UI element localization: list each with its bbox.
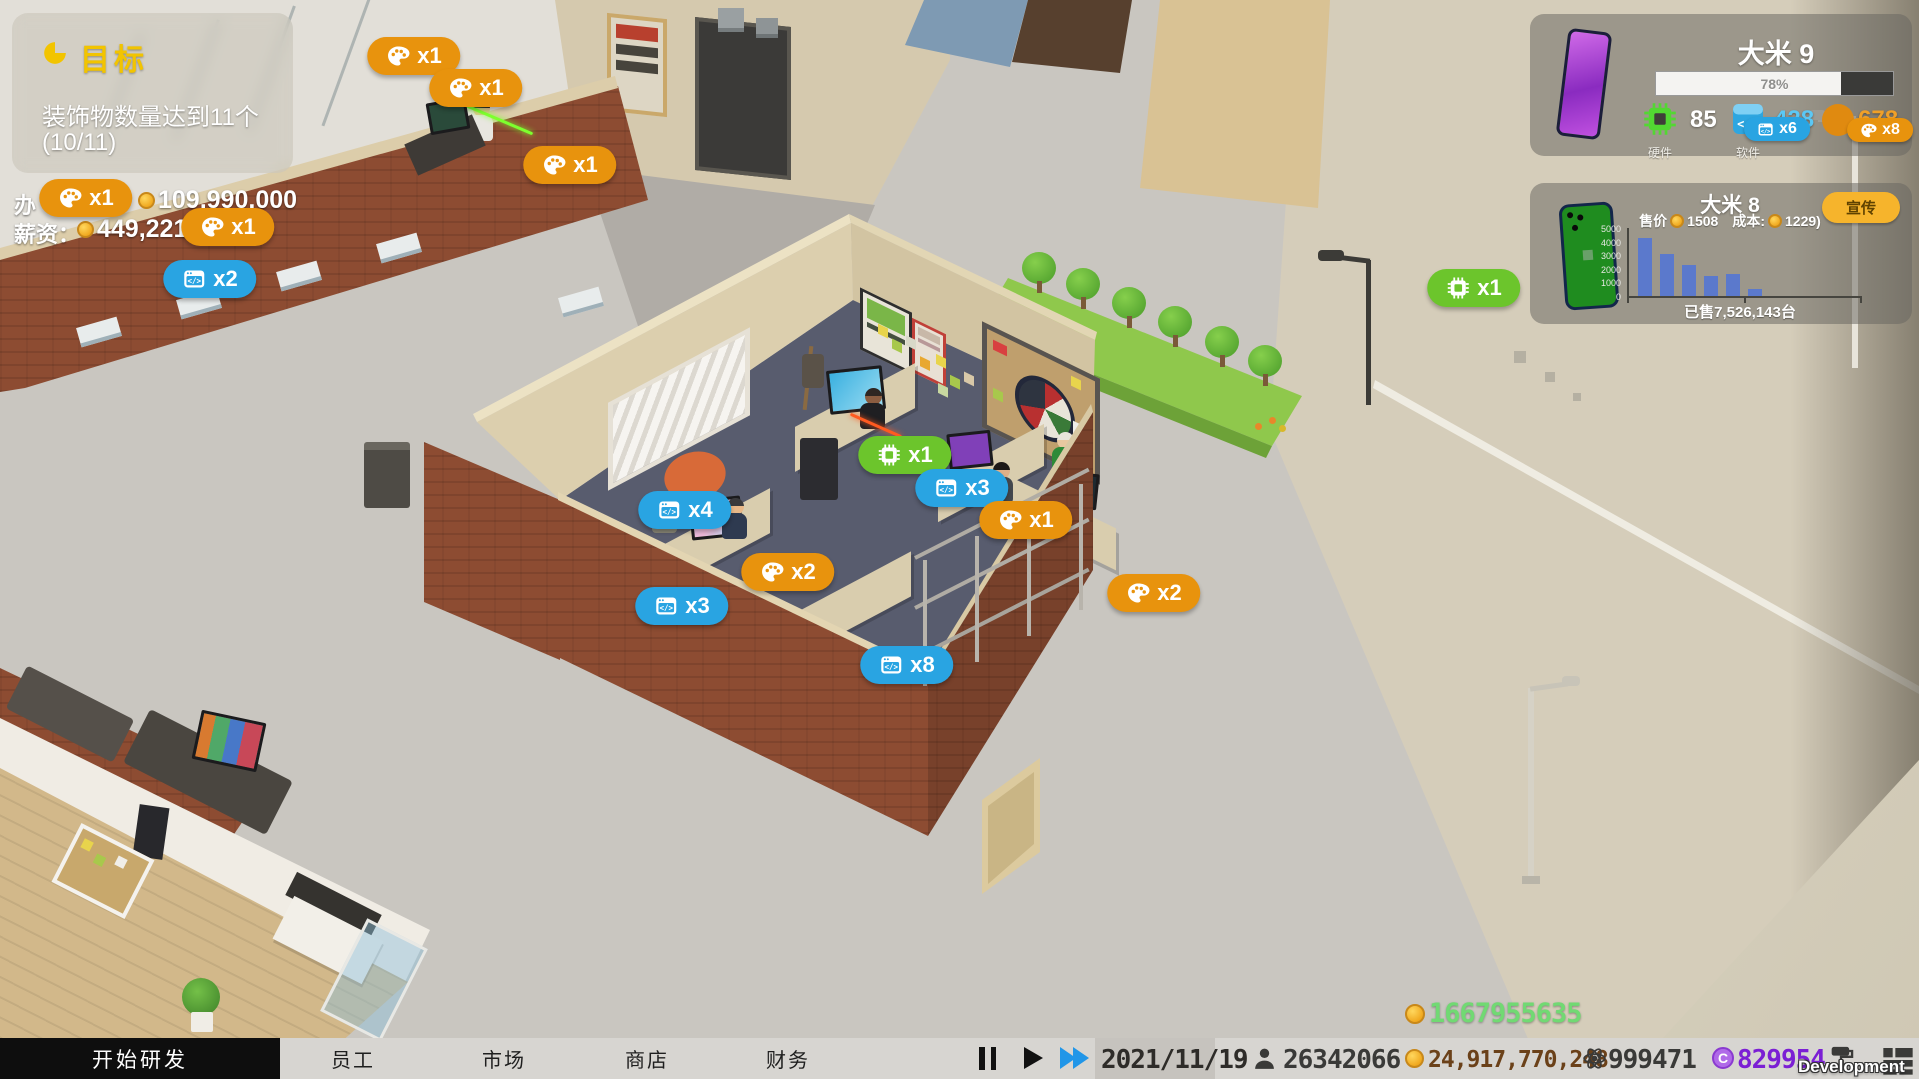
badge-count: x2 [213, 266, 237, 292]
roof-ac-unit [718, 8, 744, 32]
bottom-bar: 开始研发 员工市场商店财务 2021/11/19 26342066 24,917… [0, 1038, 1919, 1079]
resource-badge-palette[interactable]: x1 [181, 208, 274, 246]
badge-count: x6 [1779, 120, 1797, 138]
coin-icon [138, 192, 155, 209]
resource-badge-chip[interactable]: x1 [1427, 269, 1520, 307]
chip-icon [877, 443, 901, 467]
coin-icon [77, 221, 94, 238]
palette-icon [448, 76, 472, 100]
phone-sales-panel[interactable]: 大米 8 售价 1508 成本: 1229) 宣传 01000200030004… [1530, 183, 1912, 324]
coin-icon [1405, 1004, 1425, 1024]
coat-rack [792, 346, 826, 412]
badge-count: x2 [791, 559, 815, 585]
salary-value: 449,221 [97, 215, 187, 244]
units-sold: 已售7,526,143台 [1620, 301, 1860, 322]
plant [182, 978, 222, 1040]
sales-chart: 010002000300040005000 [1530, 225, 1912, 309]
stat-hardware-label: 硬件 [1648, 144, 1672, 161]
goal-progress: (10/11) [42, 129, 116, 157]
resource-badge-code[interactable]: </>x3 [635, 587, 728, 625]
badge-count: x1 [417, 43, 441, 69]
desk-tv [946, 430, 994, 470]
badge-count: x1 [1477, 275, 1501, 301]
stat-hardware: 硬件 [1642, 101, 1678, 161]
money-gain-value: 1667955635 [1429, 998, 1582, 1029]
resource-badge-palette[interactable]: x1 [39, 179, 132, 217]
road-block [1573, 393, 1581, 401]
tab-start-research[interactable]: 开始研发 [0, 1038, 280, 1079]
palette-icon [1860, 122, 1877, 139]
phone-dev-panel[interactable]: 大米 9 78% 硬件 85 </> 软件 428 678 </>x6x8 [1530, 14, 1912, 156]
game-screen: x1x1x1x1x1</>x2x1x1</>x3x1</>x4x2</>x3x2… [0, 0, 1919, 1079]
science-value: 999471 [1608, 1045, 1696, 1075]
chart-y-tick-label: 1000 [1591, 278, 1621, 288]
stat-software-label: 软件 [1736, 144, 1760, 161]
badge-count: x1 [89, 185, 113, 211]
population-value: 26342066 [1283, 1045, 1400, 1075]
code-icon: </> [934, 476, 958, 500]
tree [1205, 326, 1239, 367]
coin-icon [1405, 1049, 1424, 1068]
resource-badge-palette[interactable]: x2 [741, 553, 834, 591]
svg-text:</>: </> [187, 277, 201, 286]
dev-phone-name: 大米 9 [1640, 32, 1912, 71]
chip-icon [1446, 276, 1470, 300]
promote-button[interactable]: 宣传 [1822, 192, 1900, 223]
resource-badge-palette[interactable]: x1 [429, 69, 522, 107]
chart-y-axis [1627, 228, 1629, 302]
chart-y-tick-label: 0 [1591, 292, 1621, 302]
badge-count: x2 [1157, 580, 1181, 606]
goal-panel: 目标 装饰物数量达到11个 (10/11) [12, 13, 293, 173]
badge-count: x8 [1882, 121, 1900, 139]
badge-count: x4 [688, 497, 712, 523]
roof-ac-unit [756, 18, 778, 38]
badge-count: x3 [965, 475, 989, 501]
chart-y-tick-label: 3000 [1591, 251, 1621, 261]
flowers [1255, 415, 1289, 435]
tree [1022, 252, 1056, 293]
salary-label: 薪资： [14, 217, 80, 249]
badge-count: x1 [573, 152, 597, 178]
palette-icon [1126, 581, 1150, 605]
tab-start-research-label: 开始研发 [92, 1044, 188, 1074]
palette-icon [998, 508, 1022, 532]
goal-pie-icon [42, 40, 68, 74]
phone-preview-purple [1556, 28, 1613, 141]
tree [1112, 287, 1146, 328]
palette-icon [542, 153, 566, 177]
money-value: 24,917,770,248 [1428, 1047, 1608, 1073]
badge-count: x8 [910, 652, 934, 678]
development-build-watermark: Development Build [1798, 1057, 1919, 1079]
road-block [1545, 372, 1555, 382]
resource-badge-code[interactable]: </>x4 [638, 491, 731, 529]
tab-4[interactable]: 财务 [766, 1038, 810, 1079]
svg-text:</>: </> [659, 604, 673, 613]
badge-count: x1 [908, 442, 932, 468]
population-icon [1252, 1046, 1277, 1071]
resource-badge-code[interactable]: </>x6 [1744, 117, 1810, 141]
stat-hardware-value: 85 [1690, 106, 1717, 134]
svg-text:</>: </> [662, 508, 676, 517]
palette-icon [386, 44, 410, 68]
code-icon: </> [654, 594, 678, 618]
window-sill [558, 287, 604, 318]
resource-badge-code[interactable]: </>x8 [860, 646, 953, 684]
goal-title: 目标 [80, 35, 148, 79]
chart-bar [1682, 265, 1696, 296]
dumpster [364, 442, 410, 508]
resource-badge-palette[interactable]: x2 [1107, 574, 1200, 612]
tab-2[interactable]: 市场 [482, 1038, 526, 1079]
tree [1248, 345, 1282, 386]
pc-tower [800, 438, 838, 500]
dev-progress-label: 78% [1656, 72, 1893, 95]
promote-button-label: 宣传 [1846, 197, 1876, 218]
svg-text:</>: </> [1761, 128, 1771, 134]
badge-count: x1 [1029, 507, 1053, 533]
code-icon: </> [1757, 121, 1774, 138]
palette-icon [760, 560, 784, 584]
chart-bar [1704, 276, 1718, 296]
palette-icon [200, 215, 224, 239]
science-icon [1582, 1046, 1607, 1071]
game-date: 2021/11/19 [1101, 1045, 1248, 1075]
chart-bar [1726, 274, 1740, 296]
code-icon: </> [657, 498, 681, 522]
resource-badge-code[interactable]: </>x2 [163, 260, 256, 298]
chart-bar [1660, 254, 1674, 296]
badge-count: x1 [479, 75, 503, 101]
goal-panel-header: 目标 [42, 35, 148, 79]
tab-3[interactable]: 商店 [625, 1038, 669, 1079]
goal-description: 装饰物数量达到11个 [42, 97, 259, 132]
chart-bar [1638, 238, 1652, 296]
office-door-dark [695, 17, 791, 180]
badge-count: x1 [231, 214, 255, 240]
c-currency-icon: C [1712, 1047, 1734, 1069]
chart-y-tick-label: 2000 [1591, 265, 1621, 275]
resource-badge-palette[interactable]: x1 [523, 146, 616, 184]
chart-y-tick-label: 4000 [1591, 238, 1621, 248]
svg-text:</>: </> [884, 663, 898, 672]
road-block [1514, 351, 1526, 363]
chart-y-tick-label: 5000 [1591, 224, 1621, 234]
chart-bar [1748, 289, 1762, 296]
tree [1158, 306, 1192, 347]
badge-count: x3 [685, 593, 709, 619]
dev-progress-bar: 78% [1655, 71, 1894, 96]
code-icon: </> [879, 653, 903, 677]
palette-icon [58, 186, 82, 210]
chart-x-tick [1860, 296, 1862, 303]
pause-button[interactable] [979, 1047, 996, 1070]
resource-badge-palette[interactable]: x8 [1847, 118, 1913, 142]
svg-text:</>: </> [939, 486, 953, 495]
code-icon: </> [182, 267, 206, 291]
resource-badge-palette[interactable]: x1 [979, 501, 1072, 539]
play-button[interactable] [1024, 1047, 1043, 1069]
tab-1[interactable]: 员工 [331, 1038, 375, 1079]
tree [1066, 268, 1100, 309]
fast-forward-button[interactable] [1060, 1047, 1090, 1070]
money-gain-popup: 1667955635 [1405, 998, 1582, 1029]
office-cost-prefix: 办 [14, 188, 36, 220]
chip-icon [1642, 101, 1678, 142]
